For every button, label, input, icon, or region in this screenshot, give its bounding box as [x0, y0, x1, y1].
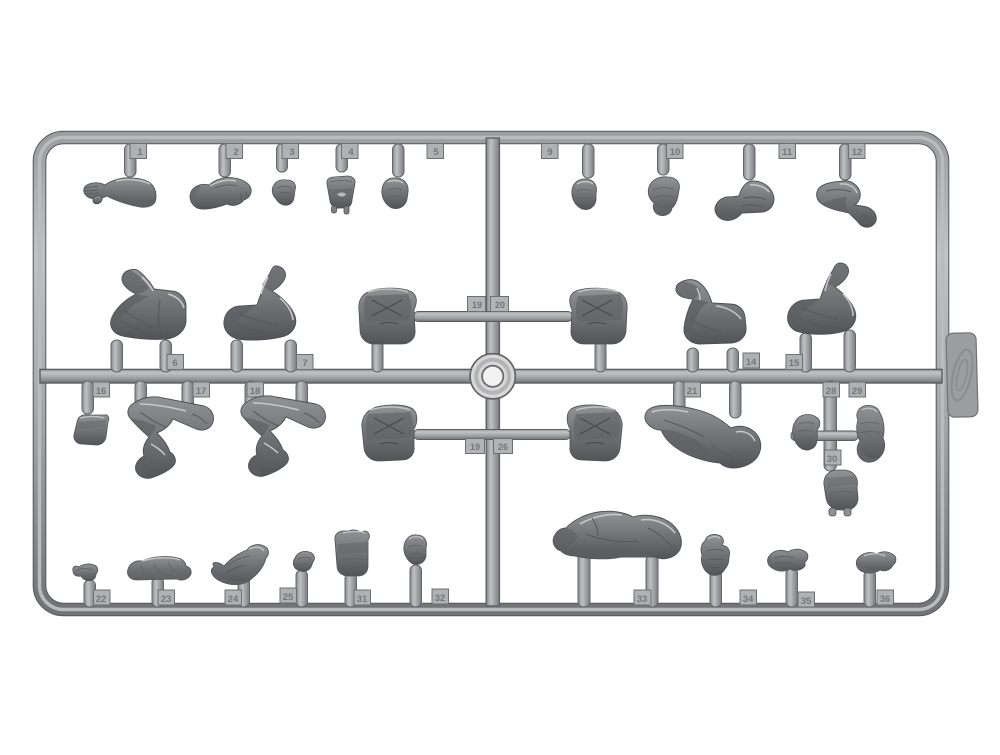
svg-text:16: 16: [96, 386, 107, 397]
svg-text:31: 31: [357, 594, 368, 605]
svg-text:1: 1: [137, 147, 143, 158]
svg-text:18: 18: [250, 386, 261, 397]
svg-text:7: 7: [302, 358, 307, 369]
svg-text:29: 29: [852, 386, 863, 397]
svg-text:33: 33: [637, 594, 648, 605]
svg-text:11: 11: [782, 147, 793, 158]
svg-text:26: 26: [498, 442, 508, 452]
svg-text:34: 34: [743, 594, 754, 605]
svg-text:36: 36: [880, 594, 891, 605]
svg-text:35: 35: [801, 596, 812, 607]
svg-text:17: 17: [196, 386, 207, 397]
svg-text:24: 24: [228, 594, 239, 605]
svg-text:5: 5: [433, 147, 439, 158]
svg-text:28: 28: [826, 386, 837, 397]
svg-text:6: 6: [172, 358, 177, 369]
svg-text:3: 3: [289, 147, 294, 158]
svg-text:19: 19: [472, 300, 482, 310]
svg-text:21: 21: [687, 386, 698, 397]
svg-text:12: 12: [852, 147, 863, 158]
svg-text:19: 19: [470, 442, 480, 452]
svg-text:30: 30: [827, 454, 838, 465]
svg-text:25: 25: [283, 592, 294, 603]
svg-text:32: 32: [435, 593, 446, 604]
svg-text:23: 23: [161, 594, 172, 605]
svg-text:10: 10: [670, 147, 681, 158]
svg-text:2: 2: [233, 147, 238, 158]
svg-text:22: 22: [96, 594, 107, 605]
svg-text:20: 20: [495, 300, 505, 310]
svg-text:9: 9: [547, 147, 552, 158]
svg-text:15: 15: [789, 358, 800, 369]
svg-text:14: 14: [746, 357, 757, 368]
svg-text:4: 4: [348, 147, 354, 158]
